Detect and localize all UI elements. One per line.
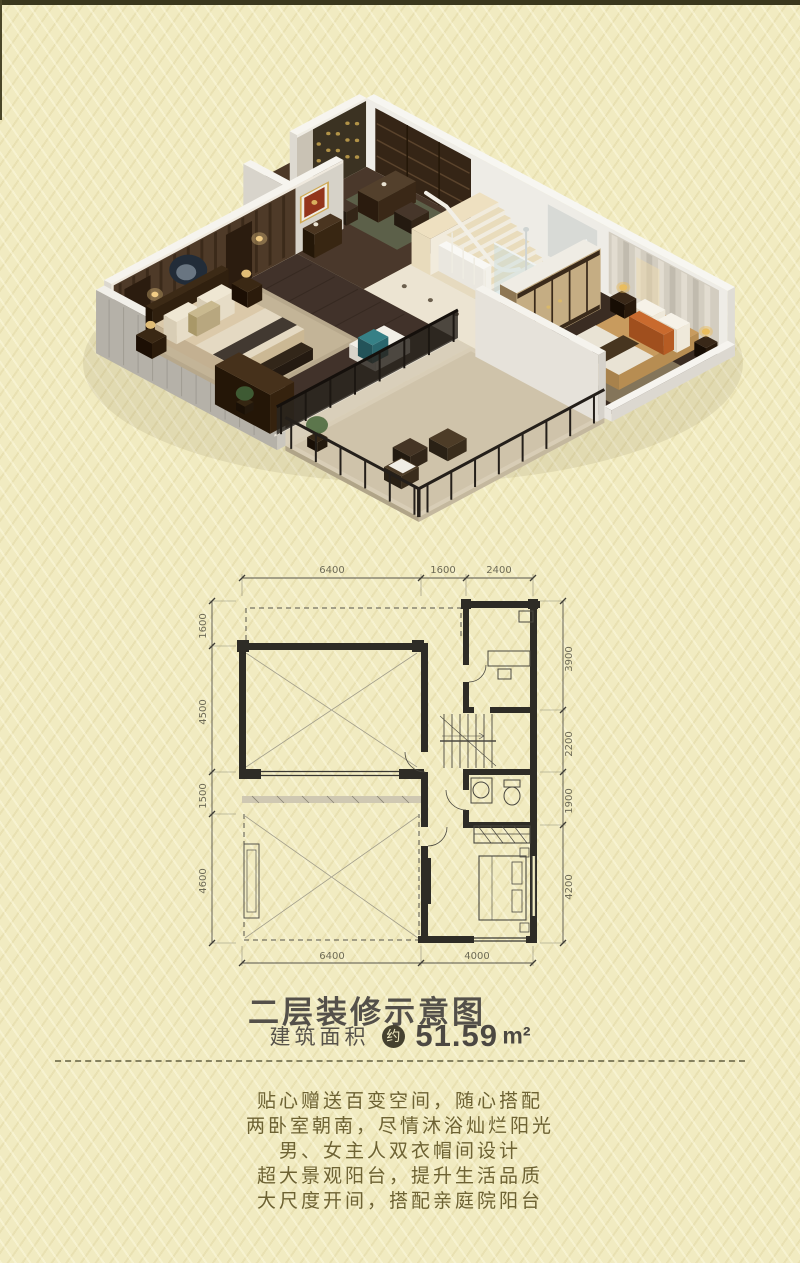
brochure-page: 6400 1600 2400 1600 4500 1500 4600 3900 … [0,0,800,1263]
plan-bathroom-fixtures [446,778,520,810]
description-line: 大尺度开间，搭配亲庭院阳台 [0,1189,800,1214]
description-line: 贴心赠送百变空间，随心搭配 [0,1089,800,1114]
plan-loft-hatch [242,796,421,803]
dim-label: 4000 [464,951,489,962]
dim-label: 4600 [198,868,209,893]
area-value: 51.59 [415,1018,498,1053]
dim-label: 3900 [564,646,575,671]
plan-study-furniture [469,611,533,682]
isometric-3d-render [40,78,760,538]
floor-plan-drawing: 6400 1600 2400 1600 4500 1500 4600 3900 … [182,556,612,981]
dim-label: 4500 [198,699,209,724]
plan-dimension-labels: 6400 1600 2400 1600 4500 1500 4600 3900 … [198,565,575,962]
building-area-row: 建筑面积 约 51.59 m² [0,1018,800,1054]
plan-balcony-planter [244,844,259,918]
dim-label: 6400 [319,951,344,962]
isometric-3d-render-canvas [40,78,760,538]
description-line: 男、女主人双衣帽间设计 [0,1139,800,1164]
dashed-divider [55,1060,745,1062]
dim-label: 1600 [430,565,455,576]
area-label: 建筑面积 [269,1026,369,1049]
area-unit: m² [502,1023,530,1049]
dim-label: 4200 [564,874,575,899]
approx-badge: 约 [382,1025,405,1048]
description-line: 两卧室朝南，尽情沐浴灿烂阳光 [0,1114,800,1139]
plan-stairs [440,714,496,768]
description-line: 超大景观阳台，提升生活品质 [0,1164,800,1189]
plan-void-diagonals [245,653,418,938]
floor-plan: 6400 1600 2400 1600 4500 1500 4600 3900 … [182,556,612,981]
dim-label: 1600 [198,613,209,638]
page-left-border [0,0,2,120]
dim-label: 1900 [564,788,575,813]
page-top-border [0,0,800,5]
dim-label: 2200 [564,731,575,756]
dim-label: 2400 [486,565,511,576]
description-paragraph: 贴心赠送百变空间，随心搭配 两卧室朝南，尽情沐浴灿烂阳光 男、女主人双衣帽间设计… [0,1089,800,1214]
dim-label: 1500 [198,783,209,808]
dim-label: 6400 [319,565,344,576]
